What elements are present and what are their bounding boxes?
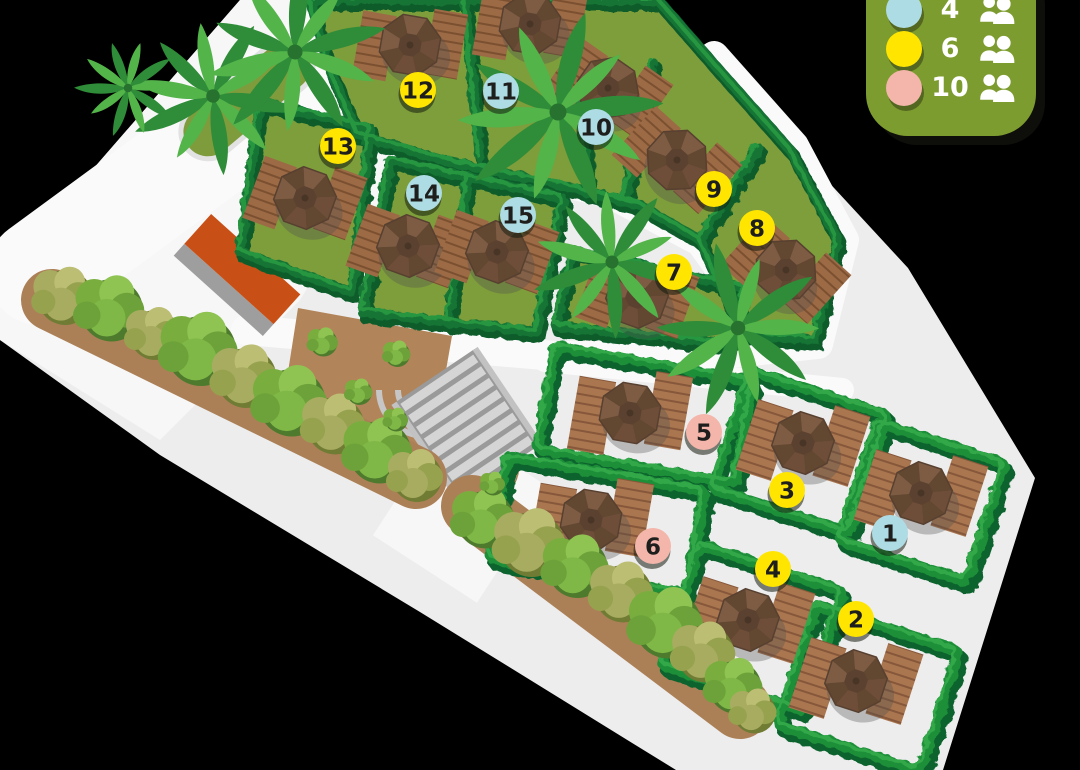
spot-15[interactable]: 15: [499, 197, 537, 238]
capacity-dot: [886, 0, 922, 28]
spot-number: 5: [696, 420, 712, 446]
spot-number: 13: [322, 134, 354, 160]
spot-number: 15: [502, 203, 534, 229]
spot-10[interactable]: 10: [577, 109, 615, 150]
legend-row-4: 4: [866, 0, 1036, 29]
capacity-dot: [886, 70, 922, 106]
capacity-label: 6: [931, 35, 969, 62]
spot-number: 6: [645, 534, 661, 560]
spot-number: 14: [408, 181, 440, 207]
legend-row-10: 10: [866, 68, 1036, 107]
spot-number: 8: [749, 216, 765, 242]
legend-rows: 4 6 10: [866, 0, 1036, 107]
capacity-dot: [886, 31, 922, 67]
spot-number: 1: [882, 521, 898, 547]
spot-number: 12: [402, 78, 434, 104]
venue-map-page: 123456789101112131415 4 6 10: [0, 0, 1080, 770]
spot-13[interactable]: 13: [319, 128, 357, 169]
spot-number: 10: [580, 115, 612, 141]
capacity-label: 10: [931, 74, 969, 101]
spot-number: 11: [485, 79, 517, 105]
people-icon: [978, 0, 1016, 25]
spot-12[interactable]: 12: [399, 72, 437, 113]
spot-11[interactable]: 11: [482, 73, 520, 114]
spot-number: 7: [666, 260, 682, 286]
people-icon: [978, 73, 1016, 103]
people-icon: [978, 34, 1016, 64]
spot-14[interactable]: 14: [405, 175, 443, 216]
capacity-label: 4: [931, 0, 969, 23]
capacity-legend: 4 6 10: [866, 0, 1036, 136]
legend-row-6: 6: [866, 29, 1036, 68]
spot-number: 9: [706, 177, 722, 203]
spot-number: 2: [848, 607, 864, 633]
spot-number: 3: [779, 478, 795, 504]
spot-number: 4: [765, 557, 781, 583]
